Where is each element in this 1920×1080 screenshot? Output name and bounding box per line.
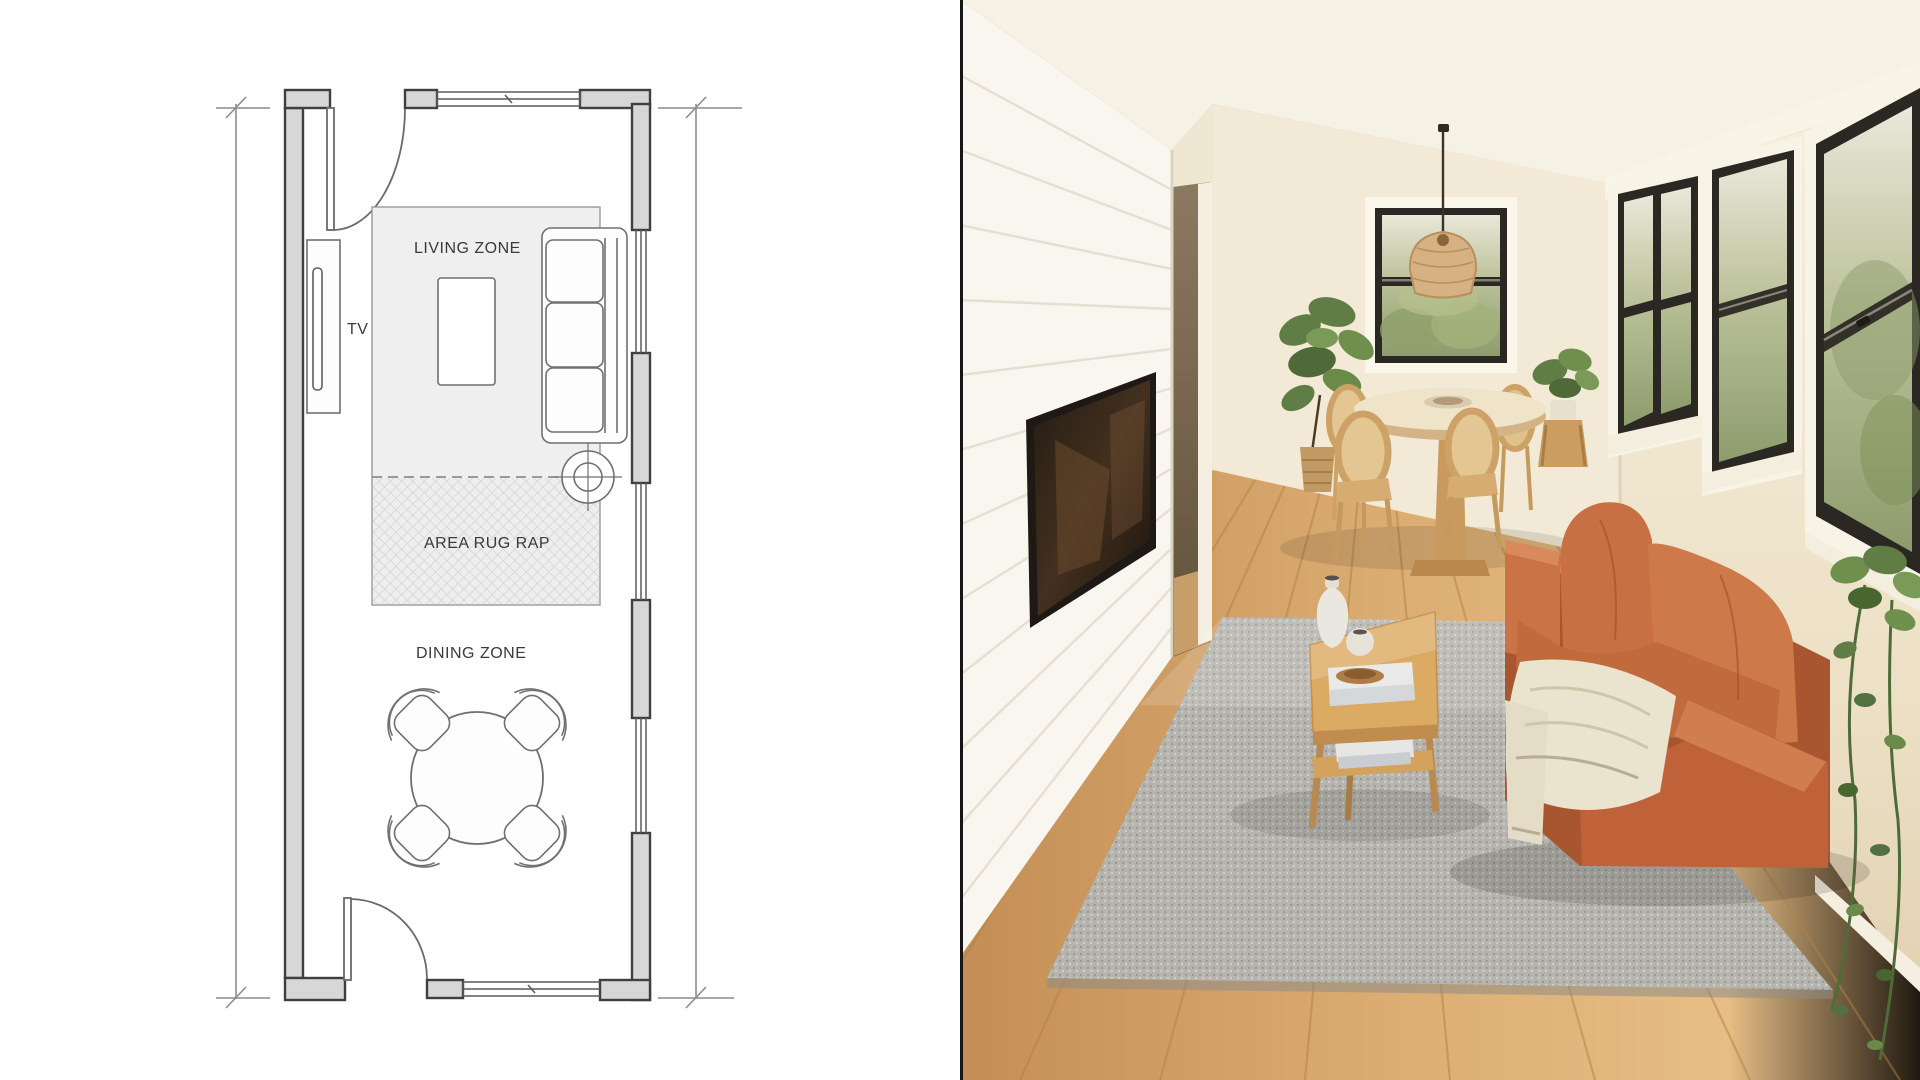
floor-plan-drawing: TV LIVING ZONE AREA RUG RAP: [0, 0, 960, 1080]
bottom-window: [463, 982, 600, 996]
room-photo-panel: [960, 0, 1920, 1080]
doorway: [1172, 104, 1213, 657]
tv-label: TV: [347, 321, 368, 338]
area-rug-label: AREA RUG RAP: [424, 535, 550, 552]
sofa-plan: [542, 228, 627, 443]
entry-door-bottom: [344, 898, 427, 980]
sofa-back-cushion-far: [1560, 502, 1657, 653]
right-window-near: [1805, 70, 1920, 612]
right-wall-windows: [636, 230, 646, 833]
floor-plan-panel: TV LIVING ZONE AREA RUG RAP: [0, 0, 960, 1080]
right-window-far: [1608, 162, 1706, 458]
living-zone-label: LIVING ZONE: [414, 240, 521, 257]
tv-cabinet: [307, 240, 340, 413]
coffee-table-plan: [438, 278, 495, 385]
dining-zone-label: DINING ZONE: [416, 645, 526, 662]
room-photo: [960, 0, 1920, 1080]
tv-symbol: [313, 268, 322, 390]
right-window-middle: [1702, 136, 1802, 496]
screenshot-root: TV LIVING ZONE AREA RUG RAP: [0, 0, 1920, 1080]
photo-edge: [960, 0, 963, 1080]
door-jamb: [1198, 182, 1212, 645]
top-window: [437, 92, 580, 106]
